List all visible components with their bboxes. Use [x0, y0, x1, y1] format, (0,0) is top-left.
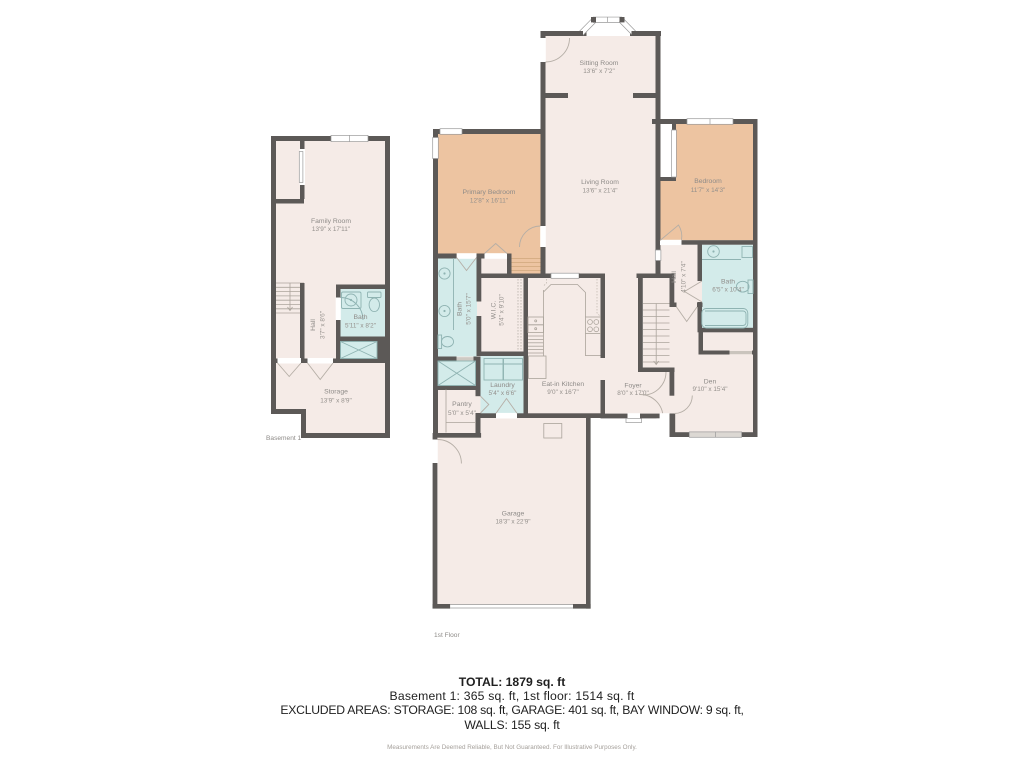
svg-text:1st Floor: 1st Floor: [434, 632, 460, 639]
svg-text:9'0" x 16'7": 9'0" x 16'7": [547, 389, 579, 396]
svg-text:Family Room: Family Room: [311, 218, 351, 225]
svg-text:5'4" x 6'6": 5'4" x 6'6": [489, 390, 517, 397]
svg-text:Den: Den: [704, 379, 717, 386]
svg-text:Laundry: Laundry: [490, 382, 515, 389]
svg-text:Bath: Bath: [354, 314, 368, 321]
svg-text:Hall: Hall: [671, 271, 678, 283]
svg-text:13'6" x 7'2": 13'6" x 7'2": [583, 68, 615, 75]
svg-text:13'9" x 17'11": 13'9" x 17'11": [312, 226, 350, 233]
svg-text:Basement 1: Basement 1: [266, 435, 302, 442]
svg-text:Sitting Room: Sitting Room: [580, 60, 619, 67]
svg-text:13'6" x 21'4": 13'6" x 21'4": [582, 188, 617, 195]
svg-text:5'4" x 9'10": 5'4" x 9'10": [499, 294, 506, 326]
svg-text:Primary Bedroom: Primary Bedroom: [463, 189, 516, 196]
svg-text:Eat-in Kitchen: Eat-in Kitchen: [542, 381, 585, 388]
svg-text:5'11" x 8'2": 5'11" x 8'2": [345, 323, 376, 330]
svg-text:Bedroom: Bedroom: [694, 178, 722, 185]
svg-text:Foyer: Foyer: [624, 383, 642, 390]
svg-text:Bath: Bath: [457, 302, 464, 316]
svg-text:5'0" x 15'7": 5'0" x 15'7": [466, 293, 473, 325]
svg-text:13'9" x 8'9": 13'9" x 8'9": [320, 397, 352, 404]
svg-text:Bath: Bath: [721, 279, 735, 286]
svg-text:12'8" x 16'11": 12'8" x 16'11": [470, 198, 508, 205]
svg-text:9'10" x 15'4": 9'10" x 15'4": [692, 386, 727, 393]
svg-text:18'3" x 22'9": 18'3" x 22'9": [495, 519, 530, 526]
svg-text:Garage: Garage: [502, 511, 525, 518]
svg-text:Pantry: Pantry: [452, 401, 472, 408]
svg-text:11'7" x 14'3": 11'7" x 14'3": [691, 187, 726, 194]
svg-text:3'7" x 8'6": 3'7" x 8'6": [320, 311, 327, 339]
svg-text:Living Room: Living Room: [581, 179, 619, 186]
svg-text:8'0" x 17'0": 8'0" x 17'0": [617, 390, 649, 397]
svg-text:W.I.C.: W.I.C.: [491, 301, 498, 320]
svg-text:6'5" x 10'4": 6'5" x 10'4": [712, 287, 744, 294]
svg-text:4'10" x 7'4": 4'10" x 7'4": [681, 261, 688, 293]
svg-text:5'0" x 5'4": 5'0" x 5'4": [448, 410, 476, 417]
svg-text:Storage: Storage: [324, 389, 348, 396]
svg-text:Hall: Hall: [310, 319, 317, 331]
